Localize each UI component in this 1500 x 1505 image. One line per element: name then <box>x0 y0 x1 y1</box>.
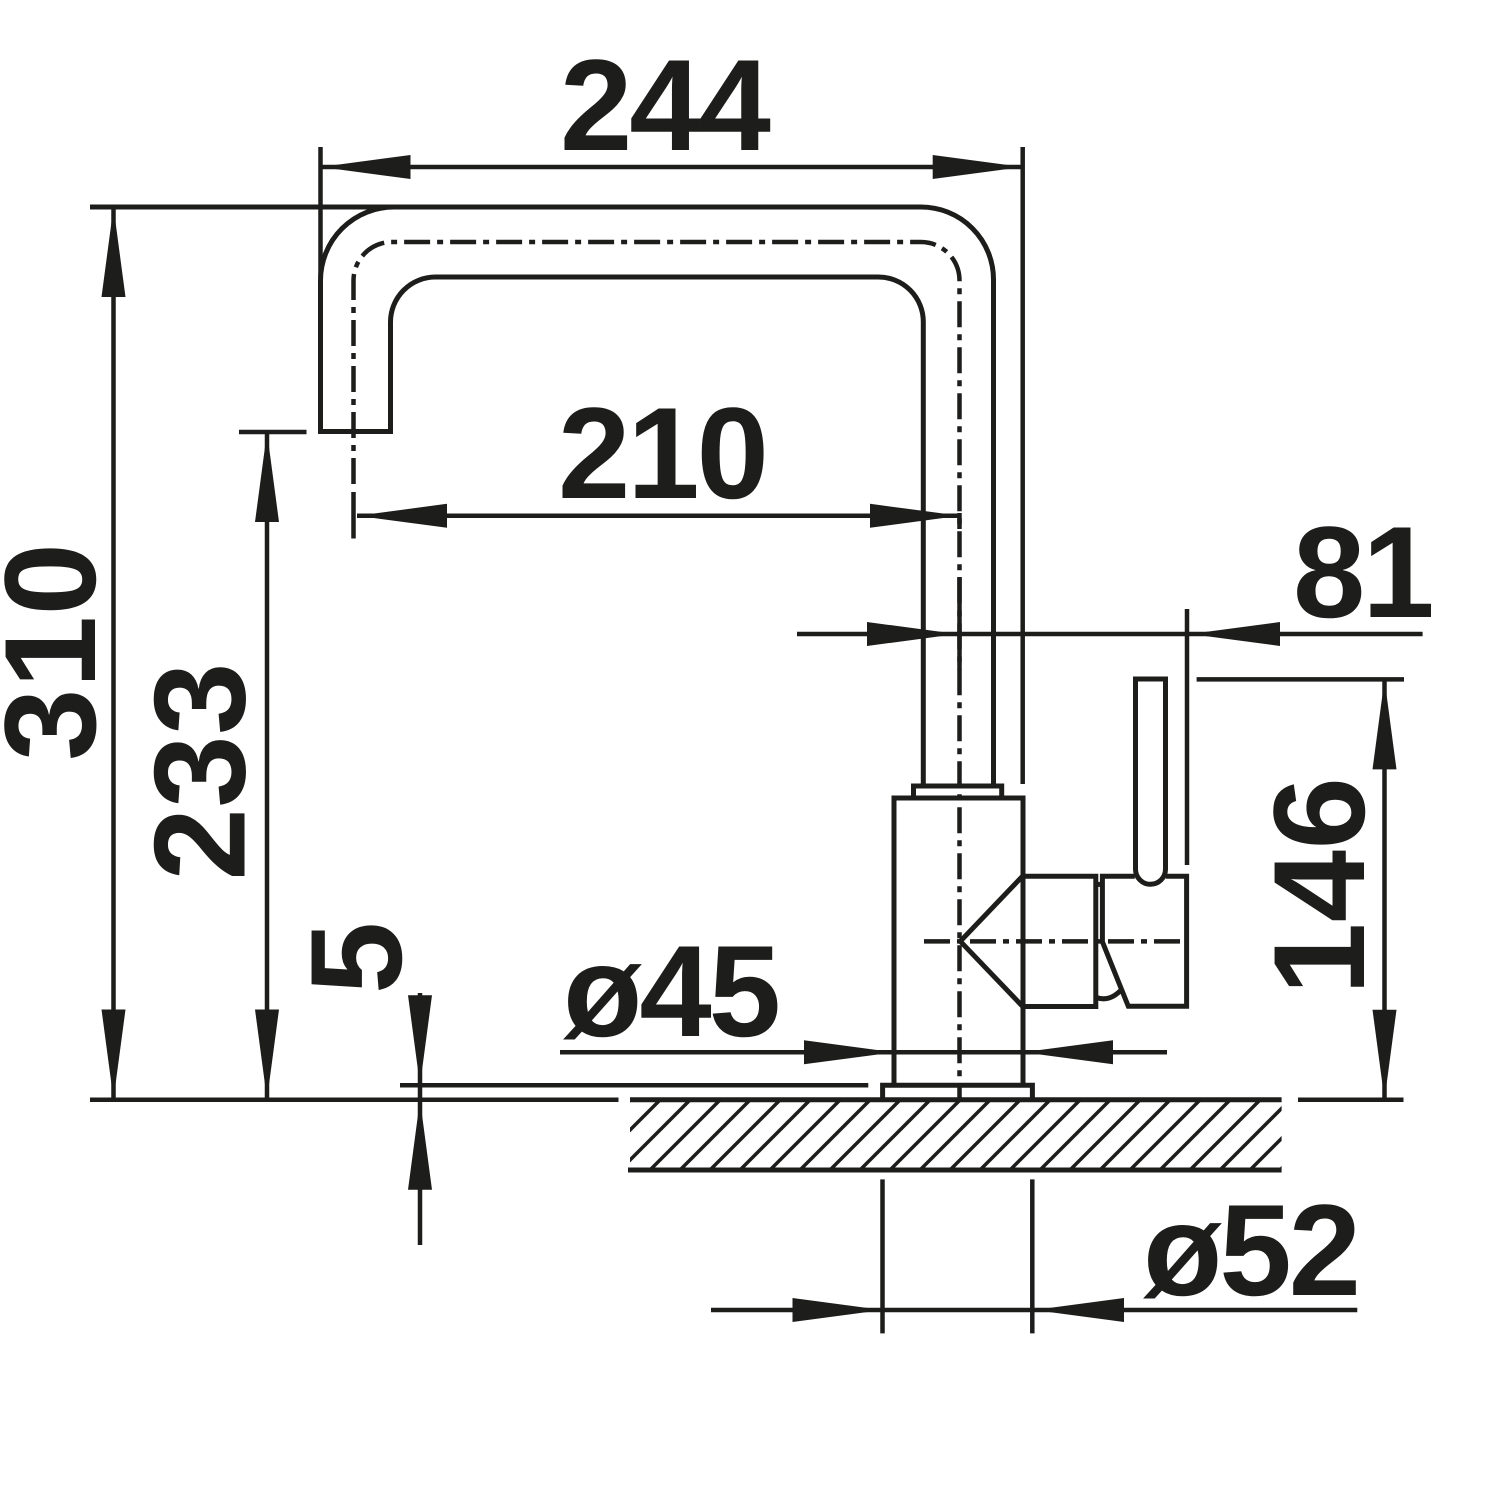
svg-text:ø52: ø52 <box>1143 1177 1358 1323</box>
svg-text:5: 5 <box>283 921 429 994</box>
svg-text:81: 81 <box>1293 499 1432 645</box>
svg-text:310: 310 <box>0 543 123 761</box>
svg-text:146: 146 <box>1246 777 1392 995</box>
svg-text:210: 210 <box>558 380 766 526</box>
svg-text:ø45: ø45 <box>563 918 778 1064</box>
svg-text:244: 244 <box>560 32 771 178</box>
svg-text:233: 233 <box>127 662 273 880</box>
